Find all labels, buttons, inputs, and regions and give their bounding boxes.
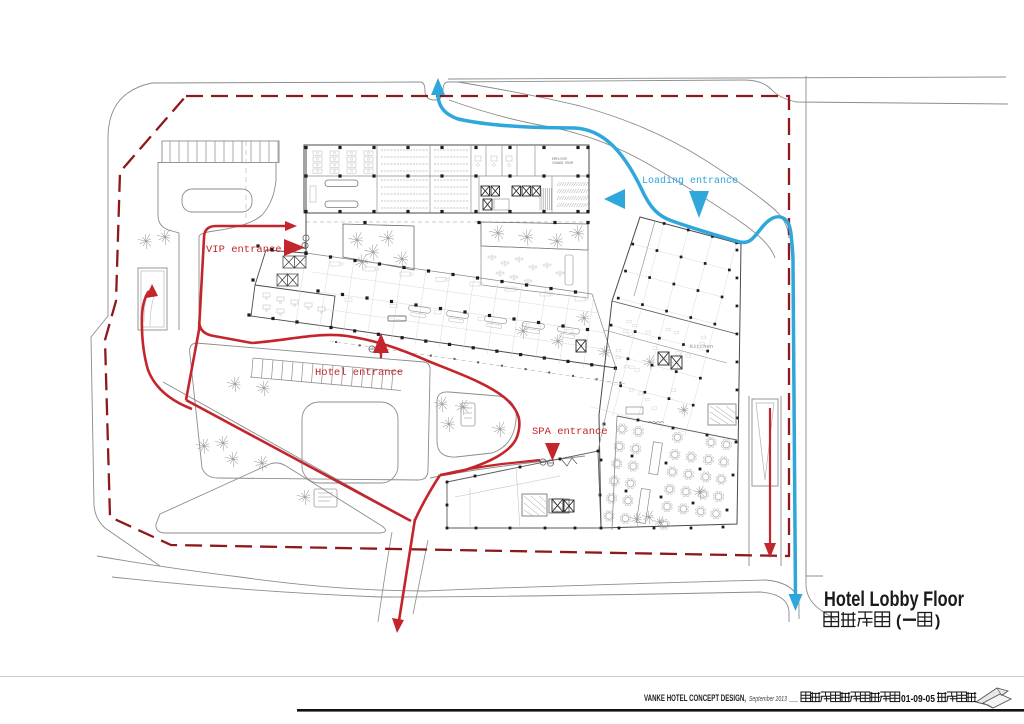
svg-text:September 2013: September 2013 xyxy=(749,694,788,703)
svg-text:Hotel Lobby Floor: Hotel Lobby Floor xyxy=(824,588,964,611)
svg-text:VIP entrance: VIP entrance xyxy=(206,244,282,256)
svg-text:__: __ xyxy=(788,694,798,703)
svg-text:CHANGE ROOM: CHANGE ROOM xyxy=(552,161,573,165)
svg-text:Hotel entrance: Hotel entrance xyxy=(315,367,403,379)
svg-text:SPA entrance: SPA entrance xyxy=(532,426,608,438)
svg-text:01-09-05: 01-09-05 xyxy=(901,693,935,705)
svg-text:VANKE HOTEL CONCEPT DESIGN,: VANKE HOTEL CONCEPT DESIGN, xyxy=(644,693,746,703)
svg-text:Loading entrance: Loading entrance xyxy=(642,175,738,187)
svg-text:): ) xyxy=(935,613,940,630)
svg-text:(: ( xyxy=(896,613,902,630)
